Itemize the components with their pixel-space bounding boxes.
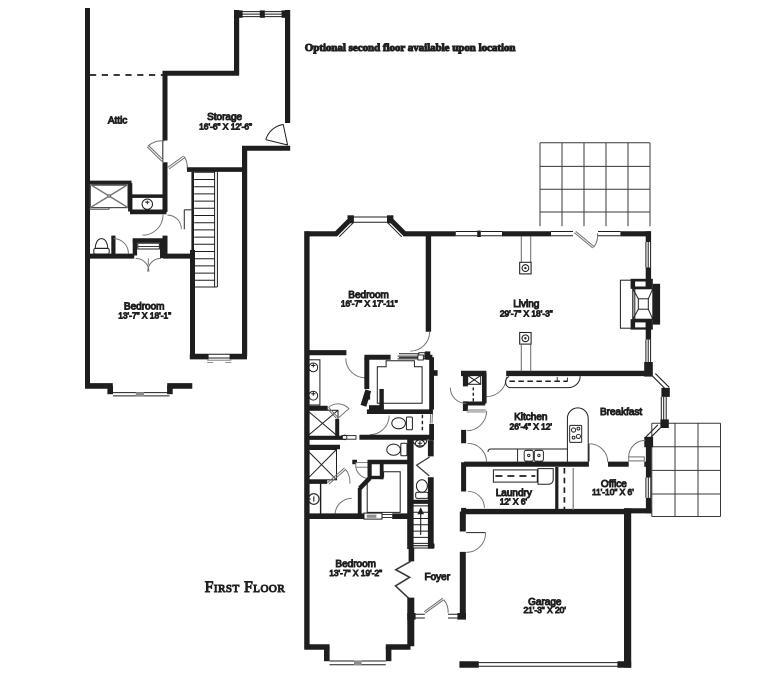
svg-text:26'-4" X 12': 26'-4" X 12' bbox=[510, 422, 553, 432]
svg-text:Optional second floor availabl: Optional second floor available upon loc… bbox=[305, 42, 516, 54]
svg-text:13'-7" X 19'-2": 13'-7" X 19'-2" bbox=[329, 568, 382, 578]
svg-text:Attic: Attic bbox=[108, 115, 127, 126]
svg-text:12' X 6': 12' X 6' bbox=[500, 497, 528, 507]
svg-text:29'-7" X 18'-3": 29'-7" X 18'-3" bbox=[500, 308, 553, 318]
svg-text:11'-10" X 6': 11'-10" X 6' bbox=[592, 487, 634, 497]
svg-text:16'-7" X 17'-11": 16'-7" X 17'-11" bbox=[341, 299, 398, 309]
svg-text:Foyer: Foyer bbox=[425, 572, 451, 583]
svg-text:21'-3" X 20': 21'-3" X 20' bbox=[523, 605, 566, 615]
svg-text:13'-7" X 18'-1": 13'-7" X 18'-1" bbox=[118, 311, 171, 321]
svg-text:16'-6" X 12'-6": 16'-6" X 12'-6" bbox=[199, 122, 252, 132]
svg-text:First Floor: First Floor bbox=[205, 579, 286, 596]
svg-text:Breakfast: Breakfast bbox=[600, 407, 642, 418]
